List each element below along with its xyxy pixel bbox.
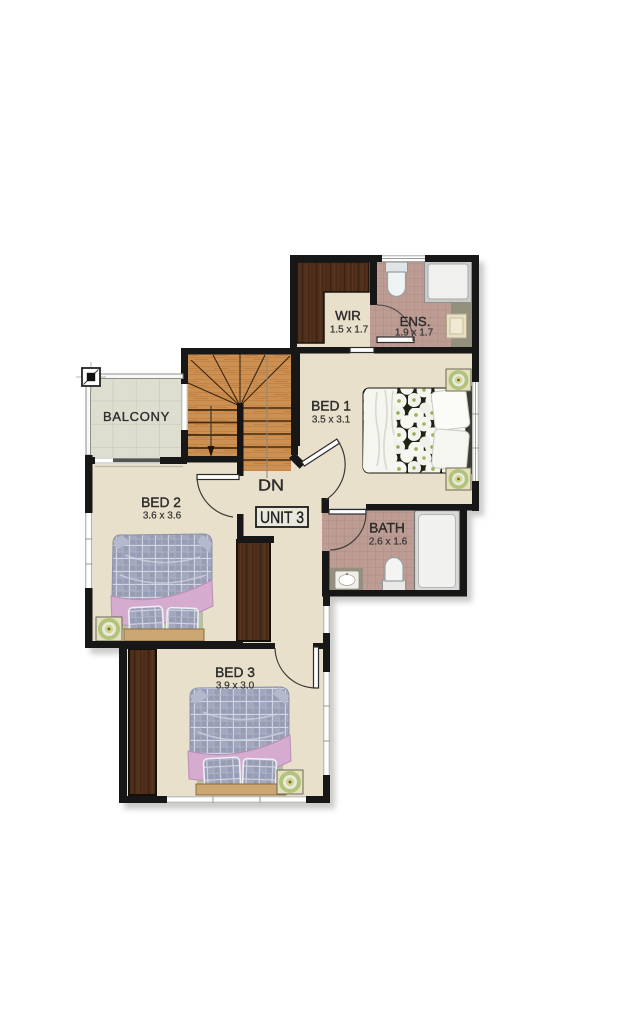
svg-text:1.9 x 1.7: 1.9 x 1.7 [395, 328, 434, 339]
svg-text:WIR: WIR [335, 308, 361, 323]
svg-text:3.6 x 3.6: 3.6 x 3.6 [143, 511, 182, 522]
svg-text:BALCONY: BALCONY [103, 409, 170, 424]
svg-text:BATH: BATH [369, 521, 405, 536]
svg-text:BED 2: BED 2 [141, 495, 181, 510]
svg-text:2.6 x 1.6: 2.6 x 1.6 [369, 537, 408, 548]
svg-text:3.9 x 3.0: 3.9 x 3.0 [216, 681, 255, 692]
svg-text:DN: DN [258, 478, 284, 495]
svg-text:3.5 x 3.1: 3.5 x 3.1 [312, 415, 351, 426]
svg-text:BED 1: BED 1 [311, 399, 351, 414]
svg-text:1.5 x 1.7: 1.5 x 1.7 [330, 325, 369, 336]
svg-text:BED 3: BED 3 [215, 665, 255, 680]
svg-text:UNIT 3: UNIT 3 [260, 509, 304, 527]
